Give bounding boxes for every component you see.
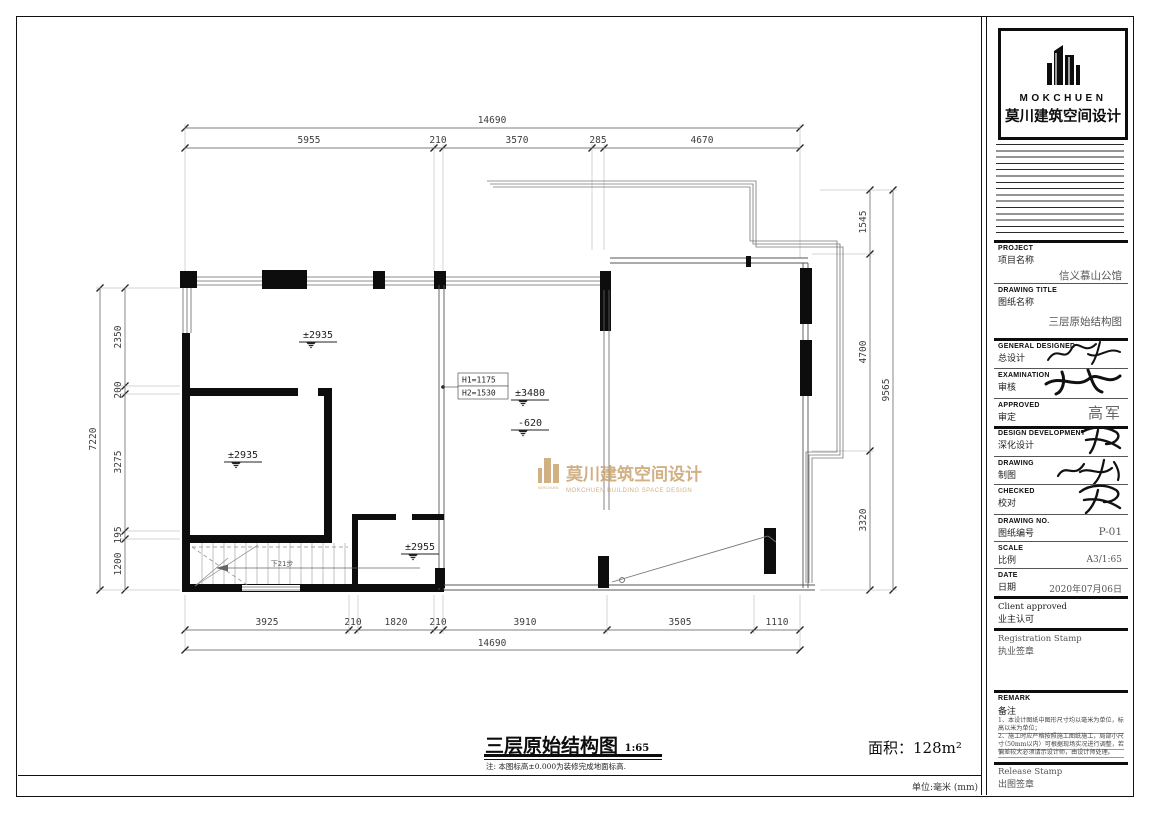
plan-caption-note: 注: 本图标高±0.000为装修完成地面标高.: [486, 761, 626, 772]
design-dev-label-en: DESIGN DEVELOPMENT: [998, 430, 1085, 437]
client-approved-label-cn: 业主认可: [998, 612, 1034, 625]
svg-text:5955: 5955: [298, 135, 321, 146]
svg-text:3910: 3910: [514, 617, 537, 628]
scale-value: A3/1:65: [1087, 555, 1122, 565]
svg-text:1545: 1545: [858, 211, 869, 234]
date-label-en: DATE: [998, 572, 1018, 579]
svg-text:H1=1175: H1=1175: [462, 376, 496, 385]
svg-text:3570: 3570: [506, 135, 529, 146]
general-designed-label-cn: 总设计: [998, 351, 1025, 364]
level-room-top: ±2935: [299, 330, 337, 349]
drawing-title-label-en: DRAWING TITLE: [998, 287, 1057, 294]
remark-note-line: 差较大必须请示设计师，由设计师处理。: [998, 749, 1124, 758]
dim-top-segments: 5955 210 3570 285 4670: [182, 124, 804, 276]
svg-text:9565: 9565: [881, 379, 892, 402]
title-block: MOKCHUEN 莫川建筑空间设计 PROJECT 项目名称 信义慕山公馆 DR…: [990, 16, 1132, 795]
stair-direction-arrow: 下21步: [216, 560, 420, 572]
dim-left-segments: 2350 200 3275 195 1200: [96, 285, 180, 594]
company-logo: MOKCHUEN 莫川建筑空间设计: [998, 28, 1128, 140]
terrace-parapet: [487, 181, 843, 583]
logo-text-cn: 莫川建筑空间设计: [1001, 105, 1125, 126]
svg-text:14690: 14690: [478, 638, 507, 649]
svg-text:下21步: 下21步: [271, 560, 293, 568]
approved-label-cn: 审定: [998, 410, 1016, 423]
signature-checked: [1072, 482, 1128, 516]
remark-label-cn: 备注: [998, 704, 1016, 717]
dim-right-total: 9565: [812, 187, 897, 594]
titleblock-separator-outer: [981, 16, 982, 795]
svg-text:±3480: ±3480: [515, 388, 545, 399]
drawing-title-label-cn: 图纸名称: [998, 295, 1034, 308]
structural-columns: [180, 270, 611, 331]
drawing-title-value: 三层原始结构图: [1049, 314, 1123, 329]
approved-label-en: APPROVED: [998, 402, 1040, 409]
svg-text:±2955: ±2955: [405, 542, 435, 553]
svg-text:4670: 4670: [691, 135, 714, 146]
svg-text:210: 210: [344, 617, 361, 628]
dim-label: 14690: [478, 115, 507, 126]
scale-label-cn: 比例: [998, 553, 1016, 566]
level-stair-room: ±2955: [401, 542, 439, 561]
caption-underline: [484, 754, 662, 757]
checked-label-cn: 校对: [998, 496, 1016, 509]
building-icon: [1039, 41, 1087, 89]
remark-label-en: REMARK: [998, 695, 1031, 702]
release-stamp-label-en: Release Stamp: [998, 767, 1062, 777]
level-room-inner: ±2935: [224, 450, 262, 469]
inner-room-walls: [185, 388, 332, 543]
examination-label-cn: 审核: [998, 380, 1016, 393]
svg-text:3275: 3275: [113, 451, 124, 474]
floor-plan-svg: 14690 5955 210 3570 285 4670 3925 210: [30, 90, 970, 690]
plan-caption-scale: 1:65: [625, 743, 650, 754]
staircase: 下21步: [192, 543, 420, 587]
titleblock-separator-inner: [986, 16, 987, 795]
drawing-no-value: P-01: [1099, 526, 1122, 538]
svg-text:3925: 3925: [256, 617, 279, 628]
release-stamp-label-cn: 出图签章: [998, 777, 1034, 790]
svg-text:210: 210: [429, 617, 446, 628]
scale-label-en: SCALE: [998, 545, 1023, 552]
date-label-cn: 日期: [998, 580, 1016, 593]
svg-text:7220: 7220: [88, 427, 99, 450]
examination-label-en: EXAMINATION: [998, 372, 1050, 379]
caption-underline-thin: [484, 759, 662, 760]
svg-text:200: 200: [113, 381, 124, 398]
dim-top-total: 14690: [182, 115, 804, 132]
svg-text:MOKCHUEN: MOKCHUEN: [538, 486, 559, 490]
dim-bottom-total: 14690: [182, 638, 804, 654]
svg-text:210: 210: [429, 135, 446, 146]
checked-label-en: CHECKED: [998, 488, 1035, 495]
svg-text:MOKCHUEN BUILDING SPACE DESIGN: MOKCHUEN BUILDING SPACE DESIGN: [566, 488, 692, 494]
client-approved-label-en: Client approved: [998, 602, 1067, 612]
svg-text:1200: 1200: [113, 552, 124, 575]
level-hall-low: -620: [511, 418, 549, 437]
right-room-walls: [444, 256, 815, 590]
ramp-line: [612, 536, 776, 582]
project-value: 信义慕山公馆: [1059, 268, 1122, 283]
titleblock-hatch-lines: [996, 144, 1124, 238]
unit-note: 单位:毫米 (mm): [860, 780, 978, 793]
svg-text:1820: 1820: [385, 617, 408, 628]
svg-text:±2935: ±2935: [228, 450, 258, 461]
signature-examination: [1032, 366, 1128, 398]
drawing-no-label-cn: 图纸编号: [998, 526, 1034, 539]
registration-stamp-label-en: Registration Stamp: [998, 634, 1082, 644]
dim-right-segments: 1545 4700 3320: [858, 187, 874, 594]
level-hall: ±3480: [511, 388, 549, 407]
project-label-en: PROJECT: [998, 245, 1033, 252]
height-callout: H1=1175 H2=1530: [441, 373, 508, 399]
svg-text:2350: 2350: [113, 325, 124, 348]
svg-text:195: 195: [113, 526, 124, 543]
area-text: 面积：128m²: [868, 737, 962, 758]
approved-value: 高军: [1088, 402, 1122, 423]
left-block-walls: [180, 270, 611, 592]
svg-text:H2=1530: H2=1530: [462, 389, 496, 398]
design-dev-label-cn: 深化设计: [998, 438, 1034, 451]
registration-stamp-label-cn: 执业签章: [998, 644, 1034, 657]
svg-text:3320: 3320: [858, 508, 869, 531]
svg-text:4700: 4700: [858, 340, 869, 363]
drawing-label-en: DRAWING: [998, 460, 1034, 467]
drawing-no-label-en: DRAWING NO.: [998, 518, 1050, 525]
svg-text:莫川建筑空间设计: 莫川建筑空间设计: [565, 464, 702, 485]
project-label-cn: 项目名称: [998, 253, 1034, 266]
svg-text:3505: 3505: [669, 617, 692, 628]
svg-text:-620: -620: [518, 418, 542, 429]
watermark-logo: MOKCHUEN 莫川建筑空间设计 MOKCHUEN BUILDING SPAC…: [538, 458, 702, 494]
svg-text:±2935: ±2935: [303, 330, 333, 341]
dim-left-total: 7220: [88, 285, 104, 594]
drawing-label-cn: 制图: [998, 468, 1016, 481]
svg-text:1110: 1110: [766, 617, 789, 628]
drawing-sheet: 14690 5955 210 3570 285 4670 3925 210: [0, 0, 1150, 813]
bottom-strip-line: [18, 775, 981, 776]
date-value: 2020年07月06日: [1049, 582, 1122, 595]
logo-text-en: MOKCHUEN: [1001, 93, 1125, 104]
general-designed-label-en: GENERAL DESIGNED: [998, 343, 1075, 350]
